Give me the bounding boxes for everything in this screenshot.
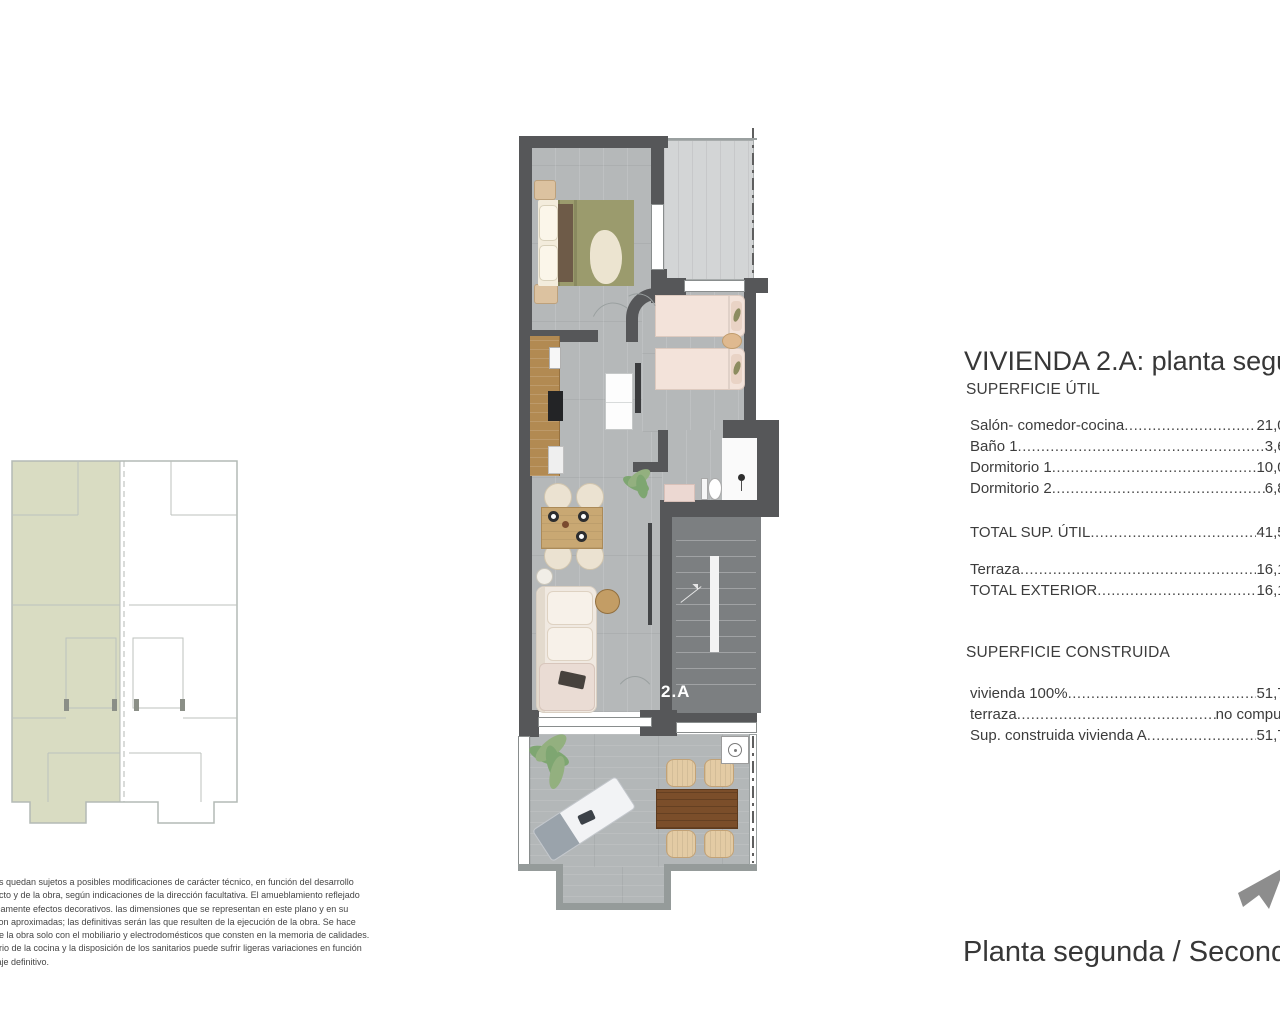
outdoor-chair bbox=[666, 759, 696, 787]
place-setting bbox=[576, 531, 587, 542]
area-value: 41,52 bbox=[1256, 524, 1280, 541]
terrace-side-wall bbox=[518, 736, 530, 867]
area-label: TOTAL EXTERIOR bbox=[970, 582, 1097, 599]
tv-unit bbox=[648, 523, 652, 625]
dot-leader bbox=[1020, 561, 1256, 578]
window bbox=[684, 280, 745, 292]
superficie-construida-rows: vivienda 100%51,74 terrazano computa Sup… bbox=[970, 685, 1280, 748]
area-row: Terraza16,17 bbox=[970, 561, 1280, 582]
nightstand bbox=[534, 180, 556, 200]
disclaimer-line: son aproximadas; las definitivas serán l… bbox=[0, 916, 369, 929]
area-label: Baño 1 bbox=[970, 438, 1018, 455]
bath-plant bbox=[738, 474, 745, 481]
area-value: 10,01 bbox=[1256, 459, 1280, 476]
dot-leader bbox=[1124, 417, 1256, 434]
key-plan bbox=[8, 453, 243, 865]
double-bed bbox=[538, 200, 634, 286]
place-setting bbox=[548, 511, 559, 522]
cooktop bbox=[548, 391, 563, 421]
upper-terrace-edge bbox=[663, 138, 757, 140]
window bbox=[651, 204, 664, 270]
outdoor-chair bbox=[666, 830, 696, 858]
page-title: VIVIENDA 2.A: planta segunda bbox=[964, 346, 1280, 377]
round-nightstand bbox=[722, 333, 742, 349]
bathroom-vanity bbox=[664, 484, 695, 502]
dot-leader bbox=[1052, 459, 1257, 476]
wall bbox=[519, 710, 539, 737]
stool bbox=[536, 568, 553, 585]
exterior-rows: Terraza16,17 TOTAL EXTERIOR16,17 bbox=[970, 561, 1280, 603]
door-swing bbox=[612, 676, 658, 740]
area-row: Salón- comedor-cocina21,06 bbox=[970, 417, 1280, 438]
terrace-wall bbox=[518, 864, 560, 871]
area-row: TOTAL EXTERIOR16,17 bbox=[970, 582, 1280, 603]
area-label: terraza bbox=[970, 706, 1017, 723]
area-row: Dormitorio 26,84 bbox=[970, 480, 1280, 501]
terrace-notch-floor bbox=[558, 867, 668, 908]
disclaimer: os quedan sujetos a posibles modificacio… bbox=[0, 876, 369, 969]
sofa bbox=[536, 586, 597, 713]
table-centerpiece bbox=[562, 521, 569, 528]
area-label: Dormitorio 2 bbox=[970, 480, 1052, 497]
sofa-chaise bbox=[539, 663, 595, 711]
disclaimer-line: icamente efectos decorativos. las dimens… bbox=[0, 903, 369, 916]
area-row: terrazano computa bbox=[970, 706, 1280, 727]
disclaimer-line: ecto y de la obra, según indicaciones de… bbox=[0, 889, 369, 902]
bed-runner bbox=[558, 204, 573, 282]
disclaimer-line: de la obra solo con el mobiliario y elec… bbox=[0, 929, 369, 942]
terrace-wall bbox=[556, 903, 671, 910]
area-value: 3,61 bbox=[1265, 438, 1280, 455]
superficie-construida-heading: SUPERFICIE CONSTRUIDA bbox=[966, 644, 1170, 662]
stair-handrail bbox=[710, 556, 719, 652]
outdoor-chair bbox=[704, 830, 734, 858]
shaft-wall bbox=[635, 363, 641, 413]
terrace-sink bbox=[721, 736, 749, 764]
area-row: Baño 13,61 bbox=[970, 438, 1280, 459]
toilet bbox=[701, 478, 708, 500]
single-bed bbox=[655, 295, 745, 337]
superficie-util-total: TOTAL SUP. ÚTIL41,52 bbox=[970, 524, 1280, 545]
coffee-table bbox=[595, 589, 620, 614]
duvet-fold bbox=[574, 200, 577, 286]
wall bbox=[744, 291, 756, 432]
terrace-wall bbox=[666, 864, 757, 871]
area-label: Sup. construida vivienda A bbox=[970, 727, 1147, 744]
sofa-cushion bbox=[547, 627, 593, 661]
wardrobe bbox=[605, 373, 633, 430]
single-bed bbox=[655, 348, 745, 390]
area-value: 6,84 bbox=[1265, 480, 1280, 497]
window bbox=[676, 722, 757, 733]
outdoor-table bbox=[656, 789, 738, 829]
brochure-page: { "document": { "title": "VIVIENDA 2.A: … bbox=[0, 0, 1280, 1024]
lounger-item bbox=[577, 809, 596, 825]
stair-tread bbox=[676, 668, 756, 669]
bed-throw bbox=[590, 230, 622, 284]
dot-leader bbox=[1018, 438, 1265, 455]
direction-arrow-icon bbox=[1237, 866, 1280, 910]
area-value: 51,74 bbox=[1256, 685, 1280, 702]
dot-leader bbox=[1097, 582, 1256, 599]
area-value: 16,17 bbox=[1256, 561, 1280, 578]
area-label: Salón- comedor-cocina bbox=[970, 417, 1124, 434]
upper-terrace-floor bbox=[663, 140, 754, 280]
floor-caption: Planta segunda / Second floor bbox=[963, 936, 1280, 969]
unit-label: 2.A bbox=[661, 682, 690, 702]
area-label: Dormitorio 1 bbox=[970, 459, 1052, 476]
dot-leader bbox=[1068, 685, 1257, 702]
area-row: TOTAL SUP. ÚTIL41,52 bbox=[970, 524, 1280, 545]
dot-leader bbox=[1090, 524, 1256, 541]
wall bbox=[519, 136, 668, 148]
area-value: 21,06 bbox=[1256, 417, 1280, 434]
area-row: Sup. construida vivienda A51,74 bbox=[970, 727, 1280, 748]
place-setting bbox=[578, 511, 589, 522]
bathroom-floor bbox=[722, 438, 758, 502]
superficie-util-heading: SUPERFICIE ÚTIL bbox=[966, 381, 1100, 399]
dot-leader bbox=[1052, 480, 1265, 497]
area-label: Terraza bbox=[970, 561, 1020, 578]
dot-leader bbox=[1147, 727, 1257, 744]
area-row: vivienda 100%51,74 bbox=[970, 685, 1280, 706]
dot-leader bbox=[1017, 706, 1216, 723]
disclaimer-line: os quedan sujetos a posibles modificacio… bbox=[0, 876, 369, 889]
sofa-cushion bbox=[547, 591, 593, 625]
disclaimer-line: taje definitivo. bbox=[0, 956, 369, 969]
kitchen-sink bbox=[549, 347, 561, 369]
bath-plant-stem bbox=[741, 481, 742, 491]
pillow bbox=[539, 205, 558, 241]
disclaimer-line: ario de la cocina y la disposición de lo… bbox=[0, 942, 369, 955]
wall bbox=[723, 420, 779, 438]
area-value: no computa bbox=[1216, 706, 1280, 723]
wall bbox=[660, 500, 779, 517]
stair-tread bbox=[676, 652, 756, 653]
area-label: TOTAL SUP. ÚTIL bbox=[970, 524, 1090, 541]
superficie-util-rows: Salón- comedor-cocina21,06 Baño 13,61 Do… bbox=[970, 417, 1280, 501]
pillow bbox=[539, 245, 558, 281]
area-value: 16,17 bbox=[1256, 582, 1280, 599]
area-value: 51,74 bbox=[1256, 727, 1280, 744]
nightstand bbox=[534, 284, 558, 304]
area-row: Dormitorio 110,01 bbox=[970, 459, 1280, 480]
terrace-railing-dashes bbox=[752, 736, 754, 863]
area-label: vivienda 100% bbox=[970, 685, 1068, 702]
wall bbox=[651, 144, 664, 206]
stair-tread bbox=[676, 540, 756, 541]
fridge bbox=[548, 446, 564, 474]
